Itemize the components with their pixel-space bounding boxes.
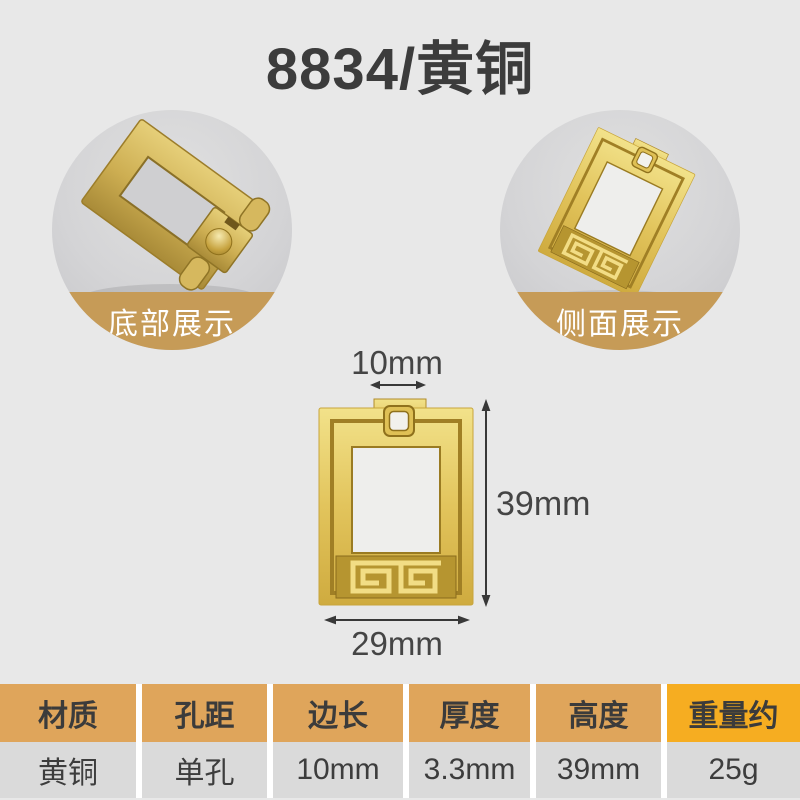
- photo-caption-bottom: 底部展示: [108, 299, 236, 343]
- photo-caption-band: 底部展示: [52, 292, 292, 350]
- spec-header-hole-distance: 孔距: [142, 684, 267, 742]
- top-width-arrow-icon: [370, 381, 426, 389]
- spec-value-side-length: 10mm: [273, 742, 403, 798]
- photo-bottom-view: 底部展示: [52, 110, 292, 350]
- spec-header-side-length: 边长: [273, 684, 403, 742]
- spec-value-material: 黄铜: [0, 742, 136, 798]
- dimension-diagram: [315, 372, 501, 634]
- spec-value-thickness: 3.3mm: [409, 742, 530, 798]
- bottom-width-arrow-icon: [324, 616, 470, 625]
- height-arrow-icon: [482, 399, 491, 607]
- spec-value-weight: 25g: [667, 742, 800, 798]
- dimension-top-width: 10mm: [314, 346, 480, 380]
- spec-table: 材质 孔距 边长 厚度 高度 重量约 黄铜 单孔 10mm 3.3mm 39mm…: [0, 684, 800, 798]
- spec-header-height: 高度: [536, 684, 661, 742]
- photo-caption-side: 侧面展示: [556, 299, 684, 343]
- spec-header-thickness: 厚度: [409, 684, 530, 742]
- dimension-height: 39mm: [496, 487, 590, 521]
- photo-caption-band: 侧面展示: [500, 292, 740, 350]
- product-title: 8834/黄铜: [0, 22, 800, 106]
- dimension-bottom-width: 29mm: [314, 627, 480, 661]
- spec-value-height: 39mm: [536, 742, 661, 798]
- photo-side-view: 侧面展示: [500, 110, 740, 350]
- spec-header-material: 材质: [0, 684, 136, 742]
- spec-value-hole-distance: 单孔: [142, 742, 267, 798]
- product-infographic: 8834/黄铜 底部展示 侧面展示: [0, 0, 800, 800]
- spec-header-weight: 重量约: [667, 684, 800, 742]
